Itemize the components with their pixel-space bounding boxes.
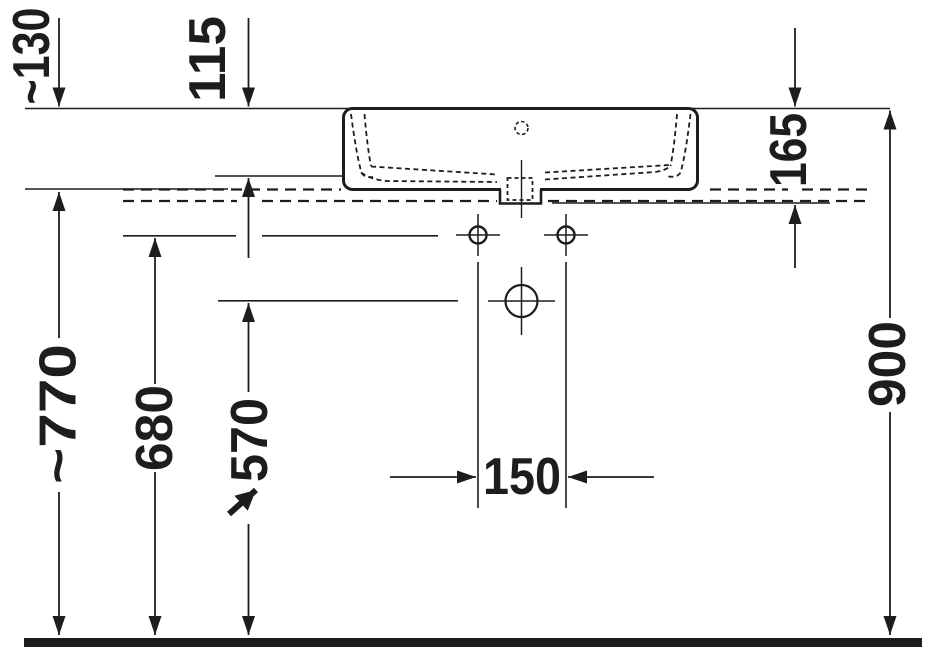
dimension-label-770: ~770 [30, 344, 88, 484]
dimension-label-165: 165 [760, 113, 818, 187]
countertop-dashed-lines [123, 190, 868, 202]
dimension-label-570: 570 [221, 398, 279, 482]
floor-line [24, 638, 922, 647]
technical-drawing-canvas: ~130 115 165 ~770 680 570 900 150 [0, 0, 930, 649]
washbasin-outline [344, 109, 698, 190]
faucet-hole-right [544, 214, 588, 256]
dimension-label-680: 680 [126, 385, 184, 471]
dimension-label-900: 900 [859, 321, 917, 407]
dimension-labels: ~130 115 165 ~770 680 570 900 150 [3, 8, 917, 507]
dimension-label-150: 150 [483, 448, 561, 506]
faucet-hole-left [456, 214, 500, 256]
dimension-label-115: 115 [179, 16, 237, 102]
drain-hole-circle [488, 267, 555, 335]
dim-570-diagonal-arrow [229, 490, 256, 514]
technical-drawing-page: ~130 115 165 ~770 680 570 900 150 [0, 0, 930, 649]
dimension-label-130: ~130 [3, 8, 61, 105]
drain-outlet-box [500, 190, 541, 204]
